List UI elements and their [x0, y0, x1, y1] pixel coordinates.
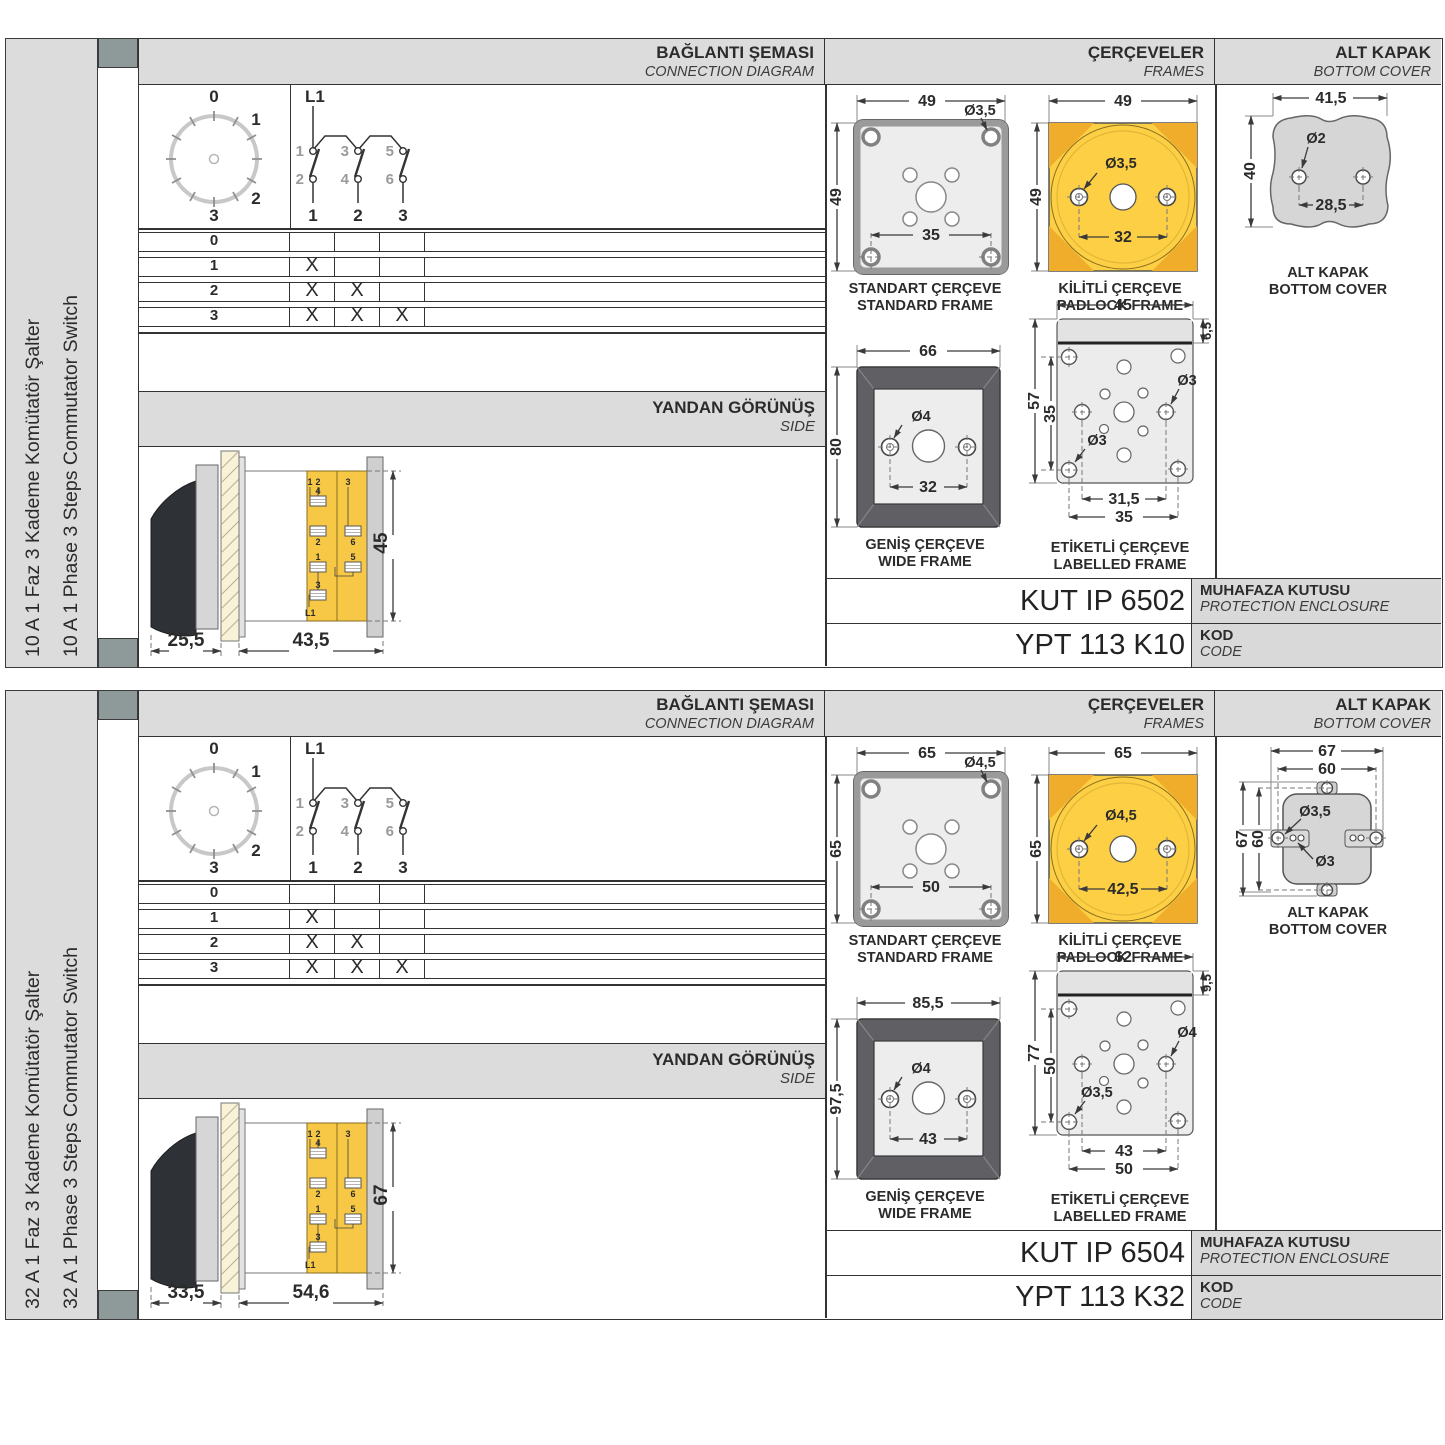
product-title-english: 32 A 1 Phase 3 Steps Commutator Switch — [60, 947, 83, 1309]
mini-label: 6 — [350, 1189, 355, 1199]
standard-frame-cell: 49 49 35 Ø3,5 STANDART ÇERÇEVE STANDARD … — [825, 85, 1025, 339]
label-turkish: KOD — [1200, 627, 1433, 644]
cell: X — [289, 308, 334, 326]
bottom-cover-drawing: 67 60 67 60 Ø3,5 Ø3 — [1215, 737, 1441, 901]
cell — [379, 233, 424, 251]
cover-caption: ALT KAPAK BOTTOM COVER — [1215, 265, 1441, 299]
labelled-frame-drawing: 45 6,5 57 35 31,5 35 Ø3 Ø3 — [1025, 293, 1215, 538]
dim-height: 77 — [1026, 1044, 1043, 1062]
dim-pitch-1: 31,5 — [1108, 491, 1139, 508]
frame-caption: STANDART ÇERÇEVE STANDARD FRAME — [825, 933, 1025, 967]
header-title: BAĞLANTI ŞEMASI — [139, 43, 814, 63]
cell: X — [334, 308, 379, 326]
terminal-1: 1 — [296, 795, 304, 812]
pole-3: 3 — [398, 206, 407, 225]
cell — [379, 283, 424, 301]
caption-english: LABELLED FRAME — [1025, 557, 1215, 574]
mini-label: 3 — [345, 477, 350, 487]
side-view-cell: 1 2 3 4 2 6 1 5 3 L1 25,5 43,5 45 — [139, 449, 799, 672]
dim-hole-2: Ø3 — [1315, 854, 1334, 870]
caption-turkish: GENİŞ ÇERÇEVE — [825, 1189, 1025, 1206]
dim-pitch-1: 43 — [1115, 1143, 1133, 1160]
label-turkish: MUHAFAZA KUTUSU — [1200, 582, 1433, 599]
standard-frame-cell: 65 65 50 Ø4,5 STANDART ÇERÇEVE STANDARD … — [825, 737, 1025, 991]
product-code: YPT 113 K10 — [825, 624, 1191, 667]
dim-hole-bl: Ø3,5 — [1081, 1085, 1112, 1101]
product-section-10a: 10 A 1 Faz 3 Kademe Komütatör Şalter 10 … — [5, 38, 1443, 668]
cell — [334, 258, 379, 276]
cell: X — [379, 308, 424, 326]
cell: X — [334, 283, 379, 301]
cell: X — [334, 935, 379, 953]
pole-2: 2 — [353, 858, 362, 877]
dim-height: 49 — [828, 188, 845, 206]
header-subtitle: FRAMES — [825, 716, 1204, 732]
wide-frame-cell: 66 80 Ø4 32 GENİŞ ÇERÇEVE WIDE FRAME — [825, 339, 1025, 578]
bottom-cover-cell: 41,5 40 28,5 Ø2 ALT KAPAK BOTTOM COVER — [1215, 85, 1441, 305]
cell — [379, 910, 424, 928]
header-subtitle: SIDE — [139, 1070, 815, 1087]
label-english: CODE — [1200, 644, 1433, 660]
label-turkish: KOD — [1200, 1279, 1433, 1296]
dim-height-inner: 60 — [1250, 830, 1267, 848]
cell: X — [289, 960, 334, 978]
circuit-cell: L1 1 2 3 4 5 6 1 2 3 — [291, 85, 825, 229]
side-view-header: YANDAN GÖRÜNÜŞ SIDE — [139, 391, 825, 447]
cell: X — [289, 910, 334, 928]
cell — [379, 258, 424, 276]
header-title: BAĞLANTI ŞEMASI — [139, 695, 814, 715]
mini-label: L1 — [305, 608, 316, 618]
dim-width: 85,5 — [912, 995, 943, 1012]
caption-english: LABELLED FRAME — [1025, 1209, 1215, 1226]
terminal-6: 6 — [386, 823, 394, 840]
product-title-column: 32 A 1 Faz 3 Kademe Komütatör Şalter 32 … — [5, 690, 98, 1320]
dim-height: 49 — [1028, 188, 1045, 206]
dim-hole-bl: Ø3 — [1087, 433, 1106, 449]
terminal-2: 2 — [296, 823, 304, 840]
terminal-6: 6 — [386, 171, 394, 188]
dim-handle-depth: 33,5 — [168, 1282, 205, 1303]
dim-body-depth: 54,6 — [293, 1282, 330, 1303]
dim-width: 45 — [1114, 297, 1132, 314]
code-label: KOD CODE — [1191, 624, 1441, 667]
cell — [289, 885, 334, 903]
mini-label: 4 — [315, 486, 320, 496]
labelled-frame-cell: 45 6,5 57 35 31,5 35 Ø3 Ø3 ETİKETLİ ÇERÇ… — [1025, 293, 1215, 578]
dim-hole: Ø3,5 — [964, 103, 995, 119]
mini-label: 1 — [307, 1129, 312, 1139]
terminal-5: 5 — [386, 143, 394, 160]
table-row: 0 — [139, 232, 825, 252]
caption-english: STANDARD FRAME — [825, 950, 1025, 967]
dim-width: 49 — [918, 93, 936, 110]
header-connection-diagram: BAĞLANTI ŞEMASI CONNECTION DIAGRAM — [139, 691, 825, 737]
header-title: ALT KAPAK — [1215, 43, 1431, 63]
mini-label: 3 — [345, 1129, 350, 1139]
header-subtitle: CONNECTION DIAGRAM — [139, 716, 814, 732]
header-subtitle: BOTTOM COVER — [1215, 716, 1431, 732]
cell — [334, 233, 379, 251]
dial-pos-1: 1 — [251, 110, 260, 129]
dim-height: 40 — [1242, 162, 1259, 180]
labelled-frame-cell: 62 9,5 77 50 43 50 Ø4 Ø3,5 ETİKETLİ ÇERÇ… — [1025, 945, 1215, 1230]
header-connection-diagram: BAĞLANTI ŞEMASI CONNECTION DIAGRAM — [139, 39, 825, 85]
caption-english: BOTTOM COVER — [1215, 282, 1441, 299]
row-label: 2 — [139, 283, 289, 301]
enclosure-code-row: KUT IP 6504 MUHAFAZA KUTUSU PROTECTION E… — [825, 1230, 1441, 1275]
header-subtitle: CONNECTION DIAGRAM — [139, 64, 814, 80]
product-title-turkish: 32 A 1 Faz 3 Kademe Komütatör Şalter — [22, 971, 45, 1309]
label-english: CODE — [1200, 1296, 1433, 1312]
dim-hole: Ø4,5 — [964, 755, 995, 771]
dim-pitch: 32 — [1114, 229, 1132, 246]
table-row: 1 X — [139, 257, 825, 277]
switch-dial-cell: 0 1 2 3 — [139, 85, 291, 229]
pole-1: 1 — [308, 858, 317, 877]
mini-label: L1 — [305, 1260, 316, 1270]
dim-hole: Ø4 — [911, 409, 930, 425]
enclosure-label: MUHAFAZA KUTUSU PROTECTION ENCLOSURE — [1191, 579, 1441, 623]
side-view-drawing: 1 2 3 4 2 6 1 5 3 L1 25,5 43,5 45 — [139, 449, 799, 667]
terminal-1: 1 — [296, 143, 304, 160]
dim-width-outer: 67 — [1318, 743, 1336, 760]
dim-hole-tr: Ø4 — [1177, 1025, 1196, 1041]
frame-caption: GENİŞ ÇERÇEVE WIDE FRAME — [825, 1189, 1025, 1223]
table-row: 1 X — [139, 909, 825, 929]
dim-pitch: 50 — [922, 879, 940, 896]
product-code: YPT 113 K32 — [825, 1276, 1191, 1319]
dial-pos-3: 3 — [209, 206, 218, 225]
labelled-frame-drawing: 62 9,5 77 50 43 50 Ø4 Ø3,5 — [1025, 945, 1215, 1190]
cover-caption: ALT KAPAK BOTTOM COVER — [1215, 905, 1441, 939]
cell: X — [334, 960, 379, 978]
dim-pitch: 43 — [919, 1131, 937, 1148]
wide-frame-drawing: 66 80 Ø4 32 — [825, 339, 1025, 534]
bottom-cover-drawing: 41,5 40 28,5 Ø2 — [1215, 85, 1441, 263]
product-title-turkish: 10 A 1 Faz 3 Kademe Komütatör Şalter — [22, 319, 45, 657]
dim-hole-tr: Ø3 — [1177, 373, 1196, 389]
feed-label: L1 — [305, 87, 325, 106]
label-turkish: MUHAFAZA KUTUSU — [1200, 1234, 1433, 1251]
frame-caption: ETİKETLİ ÇERÇEVE LABELLED FRAME — [1025, 540, 1215, 574]
terminal-5: 5 — [386, 795, 394, 812]
dim-inner-v: 50 — [1042, 1057, 1059, 1075]
cell: X — [289, 935, 334, 953]
caption-turkish: GENİŞ ÇERÇEVE — [825, 537, 1025, 554]
circuit-cell: L1 1 2 3 4 5 6 1 2 3 — [291, 737, 825, 881]
binder-mark-top — [98, 690, 138, 720]
dial-pos-3: 3 — [209, 858, 218, 877]
product-title-english: 10 A 1 Phase 3 Steps Commutator Switch — [60, 295, 83, 657]
header-subtitle: BOTTOM COVER — [1215, 64, 1431, 80]
side-view-drawing: 1 2 3 4 2 6 1 5 3 L1 33,5 54,6 67 — [139, 1101, 799, 1319]
table-row: 3 X X X — [139, 307, 825, 327]
dial-pos-0: 0 — [209, 87, 218, 106]
frame-caption: ETİKETLİ ÇERÇEVE LABELLED FRAME — [1025, 1192, 1215, 1226]
header-title: YANDAN GÖRÜNÜŞ — [139, 1050, 815, 1070]
header-frames: ÇERÇEVELER FRAMES — [825, 39, 1215, 85]
row-label: 0 — [139, 233, 289, 251]
mini-label: 1 — [307, 477, 312, 487]
enclosure-code-row: KUT IP 6502 MUHAFAZA KUTUSU PROTECTION E… — [825, 578, 1441, 623]
caption-turkish: STANDART ÇERÇEVE — [825, 281, 1025, 298]
product-section-32a: 32 A 1 Faz 3 Kademe Komütatör Şalter 32 … — [5, 690, 1443, 1320]
cell: X — [289, 283, 334, 301]
cell — [334, 910, 379, 928]
bottom-cover-cell: 67 60 67 60 Ø3,5 Ø3 ALT KAPAK BOTTOM COV… — [1215, 737, 1441, 967]
cell: X — [379, 960, 424, 978]
datasheet-panel: BAĞLANTI ŞEMASI CONNECTION DIAGRAM ÇERÇE… — [138, 38, 1443, 668]
product-code-row: YPT 113 K32 KOD CODE — [825, 1275, 1441, 1319]
table-row: 2 X X — [139, 934, 825, 954]
caption-english: WIDE FRAME — [825, 1206, 1025, 1223]
wide-frame-cell: 85,5 97,5 Ø4 43 GENİŞ ÇERÇEVE WIDE FRAME — [825, 991, 1025, 1230]
header-title: ÇERÇEVELER — [825, 695, 1204, 715]
product-code-row: YPT 113 K10 KOD CODE — [825, 623, 1441, 667]
side-view-cell: 1 2 3 4 2 6 1 5 3 L1 33,5 54,6 67 — [139, 1101, 799, 1324]
switch-dial-cell: 0 1 2 3 — [139, 737, 291, 881]
header-title: ALT KAPAK — [1215, 695, 1431, 715]
dim-strip: 9,5 — [1199, 974, 1214, 992]
padlock-frame-drawing: 65 65 Ø4,5 42,5 — [1025, 737, 1215, 929]
dim-width: 65 — [1114, 745, 1132, 762]
terminal-4: 4 — [341, 171, 350, 188]
dim-hole: Ø2 — [1306, 131, 1325, 147]
dim-hole: Ø3,5 — [1105, 156, 1136, 172]
dim-width: 62 — [1114, 949, 1132, 966]
dim-height: 65 — [828, 840, 845, 858]
wide-frame-drawing: 85,5 97,5 Ø4 43 — [825, 991, 1025, 1186]
dial-pos-2: 2 — [251, 841, 260, 860]
header-bottom-cover: ALT KAPAK BOTTOM COVER — [1215, 39, 1441, 85]
label-english: PROTECTION ENCLOSURE — [1200, 1251, 1433, 1267]
row-label: 3 — [139, 308, 289, 326]
table-row: 3 X X X — [139, 959, 825, 979]
dim-pitch: 32 — [919, 479, 937, 496]
dim-hole-1: Ø3,5 — [1299, 804, 1330, 820]
dim-width-inner: 60 — [1318, 761, 1336, 778]
dim-width: 65 — [918, 745, 936, 762]
caption-turkish: ALT KAPAK — [1215, 905, 1441, 922]
dial-pos-2: 2 — [251, 189, 260, 208]
mini-label: 2 — [315, 1189, 320, 1199]
frame-caption: GENİŞ ÇERÇEVE WIDE FRAME — [825, 537, 1025, 571]
dim-body-depth: 43,5 — [293, 630, 330, 651]
cell — [289, 233, 334, 251]
row-label: 1 — [139, 910, 289, 928]
frame-caption: STANDART ÇERÇEVE STANDARD FRAME — [825, 281, 1025, 315]
mini-label: 3 — [315, 1232, 320, 1242]
dim-strip: 6,5 — [1199, 322, 1214, 340]
padlock-frame-drawing: 49 49 Ø3,5 32 — [1025, 85, 1215, 277]
caption-turkish: STANDART ÇERÇEVE — [825, 933, 1025, 950]
mini-label: 4 — [315, 1138, 320, 1148]
dim-height: 67 — [371, 1184, 392, 1205]
terminal-2: 2 — [296, 171, 304, 188]
terminal-3: 3 — [341, 795, 349, 812]
code-label: KOD CODE — [1191, 1276, 1441, 1319]
row-label: 3 — [139, 960, 289, 978]
binder-strip — [98, 38, 138, 668]
dim-hole: Ø4 — [911, 1061, 930, 1077]
terminal-3: 3 — [341, 143, 349, 160]
cell — [334, 885, 379, 903]
binder-strip — [98, 690, 138, 1320]
datasheet-panel: BAĞLANTI ŞEMASI CONNECTION DIAGRAM ÇERÇE… — [138, 690, 1443, 1320]
dial-diagram: 0 1 2 3 — [139, 85, 289, 229]
label-english: PROTECTION ENCLOSURE — [1200, 599, 1433, 615]
binder-mark-top — [98, 38, 138, 68]
dim-pitch: 42,5 — [1107, 881, 1138, 898]
dim-pitch: 35 — [922, 227, 940, 244]
binder-mark-bottom — [98, 1290, 138, 1320]
header-subtitle: FRAMES — [825, 64, 1204, 80]
dim-height: 65 — [1028, 840, 1045, 858]
mini-label: 5 — [350, 1204, 355, 1214]
dim-width: 41,5 — [1315, 90, 1346, 107]
dim-hole: Ø4,5 — [1105, 808, 1136, 824]
standard-frame-drawing: 49 49 35 Ø3,5 — [825, 85, 1025, 277]
circuit-diagram: L1 1 2 3 4 5 6 1 2 3 — [291, 737, 825, 881]
header-frames: ÇERÇEVELER FRAMES — [825, 691, 1215, 737]
caption-turkish: ETİKETLİ ÇERÇEVE — [1025, 1192, 1215, 1209]
enclosure-label: MUHAFAZA KUTUSU PROTECTION ENCLOSURE — [1191, 1231, 1441, 1275]
dim-height: 45 — [371, 532, 392, 554]
cell: X — [289, 258, 334, 276]
pole-1: 1 — [308, 206, 317, 225]
mini-label: 5 — [350, 552, 355, 562]
binder-mark-bottom — [98, 638, 138, 668]
dim-pitch: 28,5 — [1315, 197, 1346, 214]
caption-turkish: ETİKETLİ ÇERÇEVE — [1025, 540, 1215, 557]
enclosure-code: KUT IP 6502 — [825, 579, 1191, 623]
cell — [379, 885, 424, 903]
dial-pos-0: 0 — [209, 739, 218, 758]
row-label: 2 — [139, 935, 289, 953]
row-label: 0 — [139, 885, 289, 903]
pole-2: 2 — [353, 206, 362, 225]
product-title-column: 10 A 1 Faz 3 Kademe Komütatör Şalter 10 … — [5, 38, 98, 668]
pole-3: 3 — [398, 858, 407, 877]
mini-label: 1 — [315, 1204, 320, 1214]
dim-handle-depth: 25,5 — [168, 630, 205, 651]
header-title: ÇERÇEVELER — [825, 43, 1204, 63]
mini-label: 3 — [315, 580, 320, 590]
dim-inner-v: 35 — [1042, 405, 1059, 423]
dim-width: 49 — [1114, 93, 1132, 110]
dial-pos-1: 1 — [251, 762, 260, 781]
table-row: 0 — [139, 884, 825, 904]
table-row: 2 X X — [139, 282, 825, 302]
caption-english: BOTTOM COVER — [1215, 922, 1441, 939]
side-view-header: YANDAN GÖRÜNÜŞ SIDE — [139, 1043, 825, 1099]
dim-height: 57 — [1026, 392, 1043, 410]
caption-english: STANDARD FRAME — [825, 298, 1025, 315]
header-bottom-cover: ALT KAPAK BOTTOM COVER — [1215, 691, 1441, 737]
dim-height-outer: 67 — [1234, 830, 1251, 848]
header-subtitle: SIDE — [139, 418, 815, 435]
standard-frame-drawing: 65 65 50 Ø4,5 — [825, 737, 1025, 929]
terminal-4: 4 — [341, 823, 350, 840]
dim-height: 97,5 — [828, 1083, 845, 1114]
circuit-diagram: L1 1 2 3 4 5 6 1 2 3 — [291, 85, 825, 229]
dim-pitch-2: 35 — [1115, 509, 1133, 526]
row-label: 1 — [139, 258, 289, 276]
cell — [379, 935, 424, 953]
enclosure-code: KUT IP 6504 — [825, 1231, 1191, 1275]
dial-diagram: 0 1 2 3 — [139, 737, 289, 881]
mini-label: 6 — [350, 537, 355, 547]
caption-english: WIDE FRAME — [825, 554, 1025, 571]
mini-label: 2 — [315, 537, 320, 547]
dim-width: 66 — [919, 343, 937, 360]
dim-pitch-2: 50 — [1115, 1161, 1133, 1178]
mini-label: 1 — [315, 552, 320, 562]
caption-turkish: ALT KAPAK — [1215, 265, 1441, 282]
header-title: YANDAN GÖRÜNÜŞ — [139, 398, 815, 418]
feed-label: L1 — [305, 739, 325, 758]
dim-height: 80 — [828, 438, 845, 456]
